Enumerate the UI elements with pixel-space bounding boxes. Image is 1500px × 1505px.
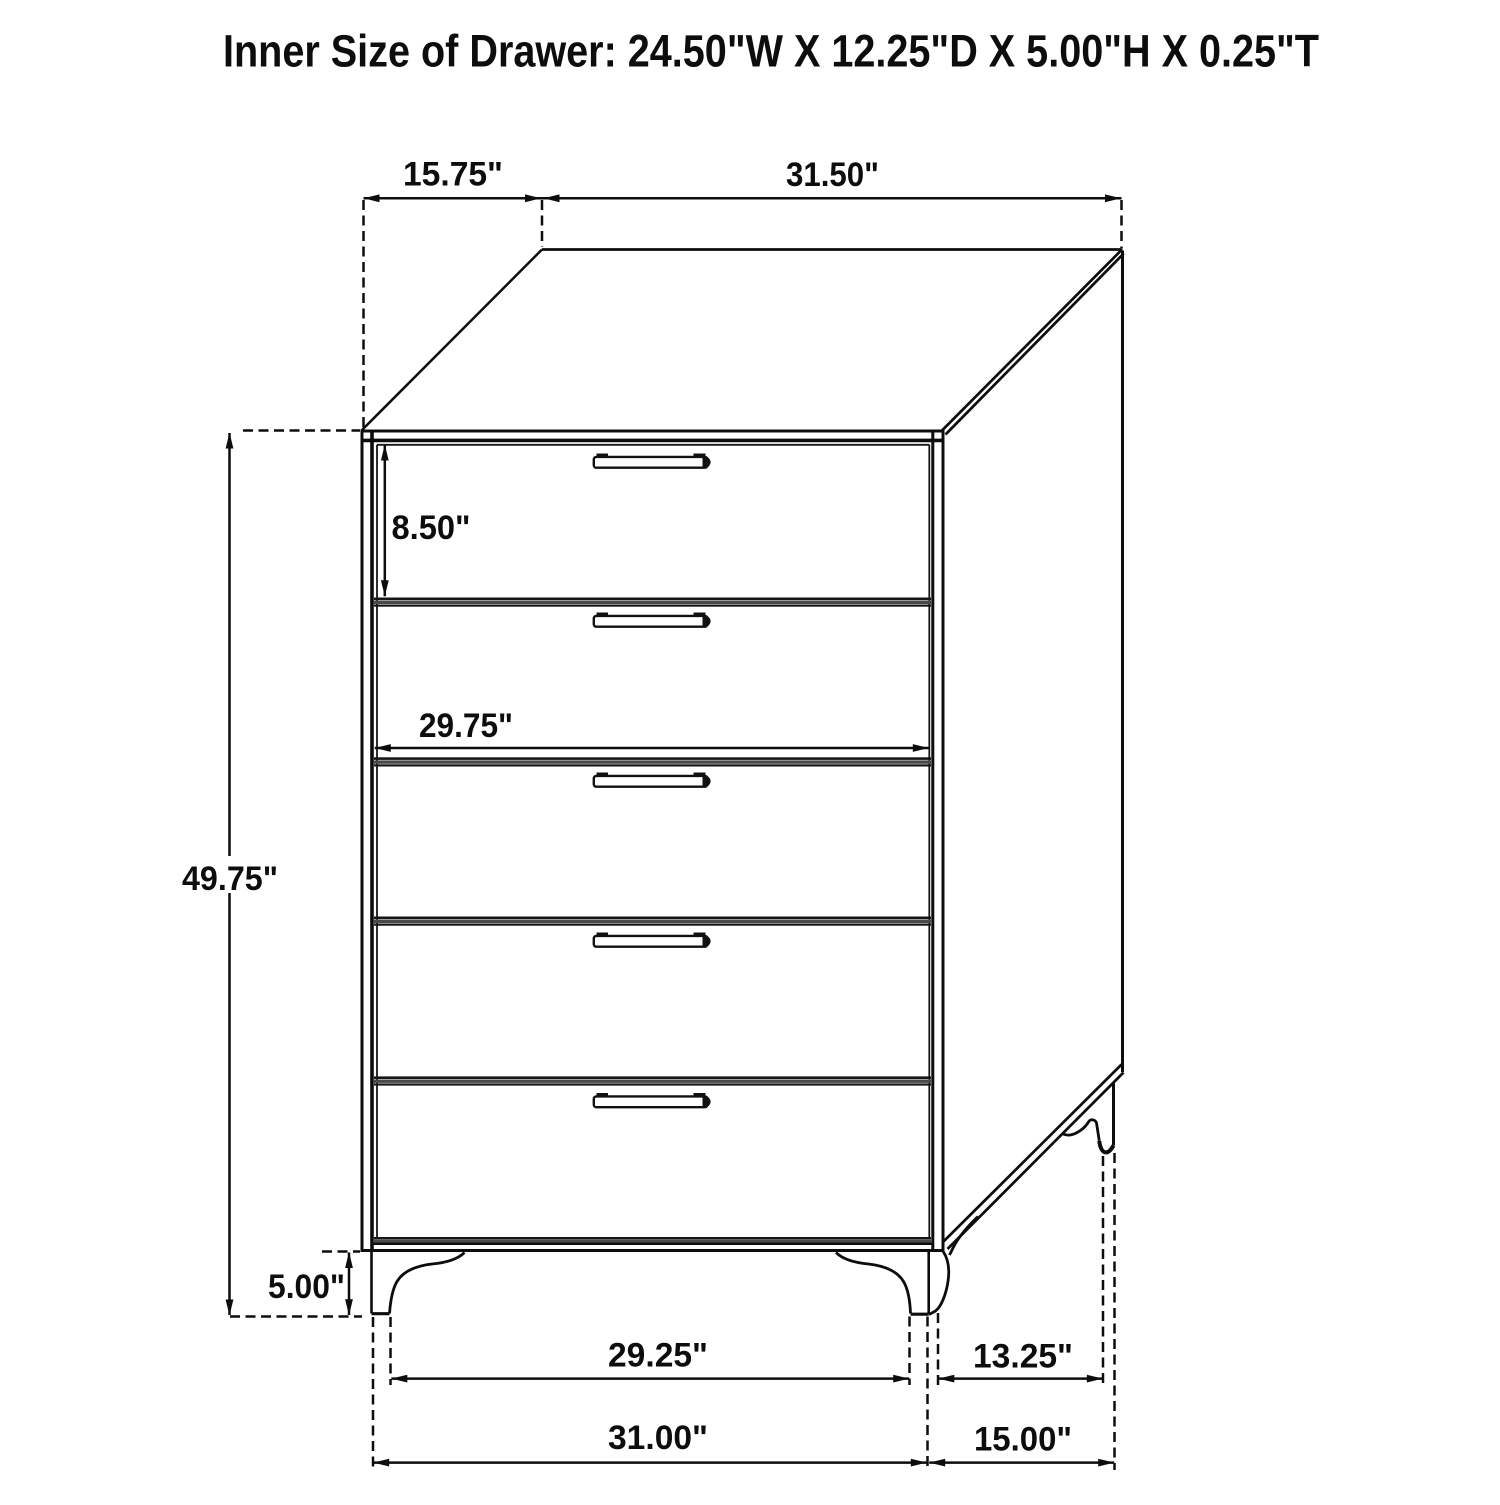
svg-text:13.25": 13.25" xyxy=(973,1338,1073,1376)
svg-text:29.75": 29.75" xyxy=(419,707,513,745)
svg-text:49.75": 49.75" xyxy=(182,860,278,898)
svg-text:15.75": 15.75" xyxy=(403,156,503,194)
svg-text:31.00": 31.00" xyxy=(608,1419,708,1457)
svg-text:8.50": 8.50" xyxy=(392,509,471,547)
svg-text:29.25": 29.25" xyxy=(608,1337,708,1375)
svg-text:Inner Size of Drawer: 24.50"W: Inner Size of Drawer: 24.50"W X 12.25"D … xyxy=(223,26,1319,77)
svg-text:15.00": 15.00" xyxy=(974,1421,1072,1459)
svg-text:5.00": 5.00" xyxy=(268,1268,345,1306)
svg-text:31.50": 31.50" xyxy=(786,156,879,194)
